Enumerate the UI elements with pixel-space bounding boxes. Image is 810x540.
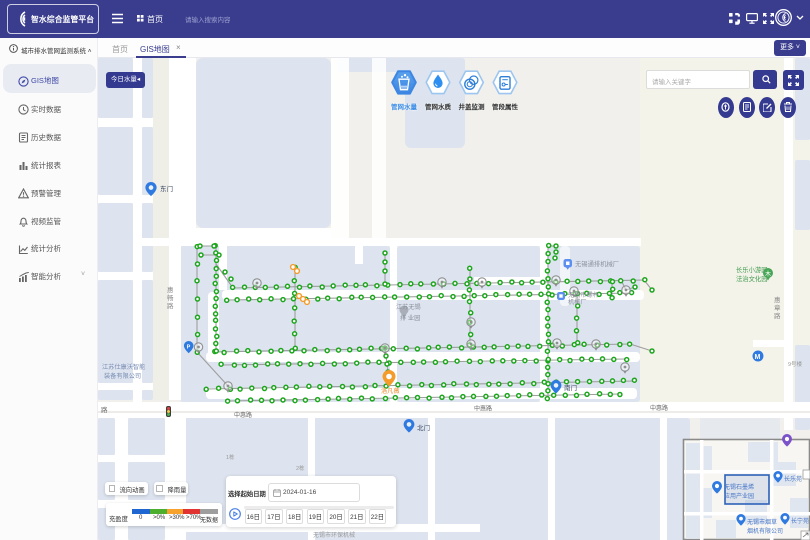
svg-text:装备有限公司: 装备有限公司: [104, 372, 141, 380]
svg-text:长宁苑: 长宁苑: [791, 517, 809, 525]
svg-text:中惠路: 中惠路: [234, 411, 252, 419]
svg-text:洛凡薇: 洛凡薇: [381, 387, 400, 395]
svg-text:机械厂: 机械厂: [568, 298, 587, 306]
svg-text:北门: 北门: [417, 423, 430, 432]
svg-text:路: 路: [101, 405, 108, 414]
svg-text:南门: 南门: [564, 383, 577, 392]
svg-text:1栋: 1栋: [226, 453, 235, 461]
svg-text:应用产业园: 应用产业园: [724, 492, 754, 500]
svg-text:中惠路: 中惠路: [650, 404, 668, 412]
svg-text:无锡通排机械厂: 无锡通排机械厂: [575, 259, 619, 268]
svg-text:P: P: [187, 345, 191, 351]
svg-text:排 业园: 排 业园: [400, 314, 420, 322]
svg-text:无锡石墨烯: 无锡石墨烯: [724, 483, 754, 491]
svg-text:中惠路: 中惠路: [474, 405, 492, 413]
svg-text:江苏仕康沃智能: 江苏仕康沃智能: [102, 363, 145, 371]
svg-text:2栋: 2栋: [296, 464, 305, 472]
svg-text:东门: 东门: [160, 184, 173, 193]
svg-text:无锡市烟草: 无锡市烟草: [747, 518, 777, 526]
svg-text:法治文化园: 法治文化园: [736, 274, 767, 283]
svg-text:无锡市环保机械: 无锡市环保机械: [313, 531, 355, 539]
svg-text:惠章路: 惠章路: [774, 295, 781, 320]
svg-text:长乐苑: 长乐苑: [784, 475, 802, 483]
svg-text:无锡市螺杆: 无锡市螺杆: [568, 291, 599, 299]
svg-text:9号楼: 9号楼: [788, 360, 803, 368]
svg-text:烟机有限公司: 烟机有限公司: [747, 527, 783, 535]
svg-text:惠畅路: 惠畅路: [167, 285, 174, 310]
svg-text:木: 木: [765, 270, 771, 278]
svg-text:M: M: [755, 354, 761, 361]
svg-text:长乐小游园: 长乐小游园: [736, 265, 767, 274]
svg-text:江苏无锡: 江苏无锡: [396, 303, 421, 311]
